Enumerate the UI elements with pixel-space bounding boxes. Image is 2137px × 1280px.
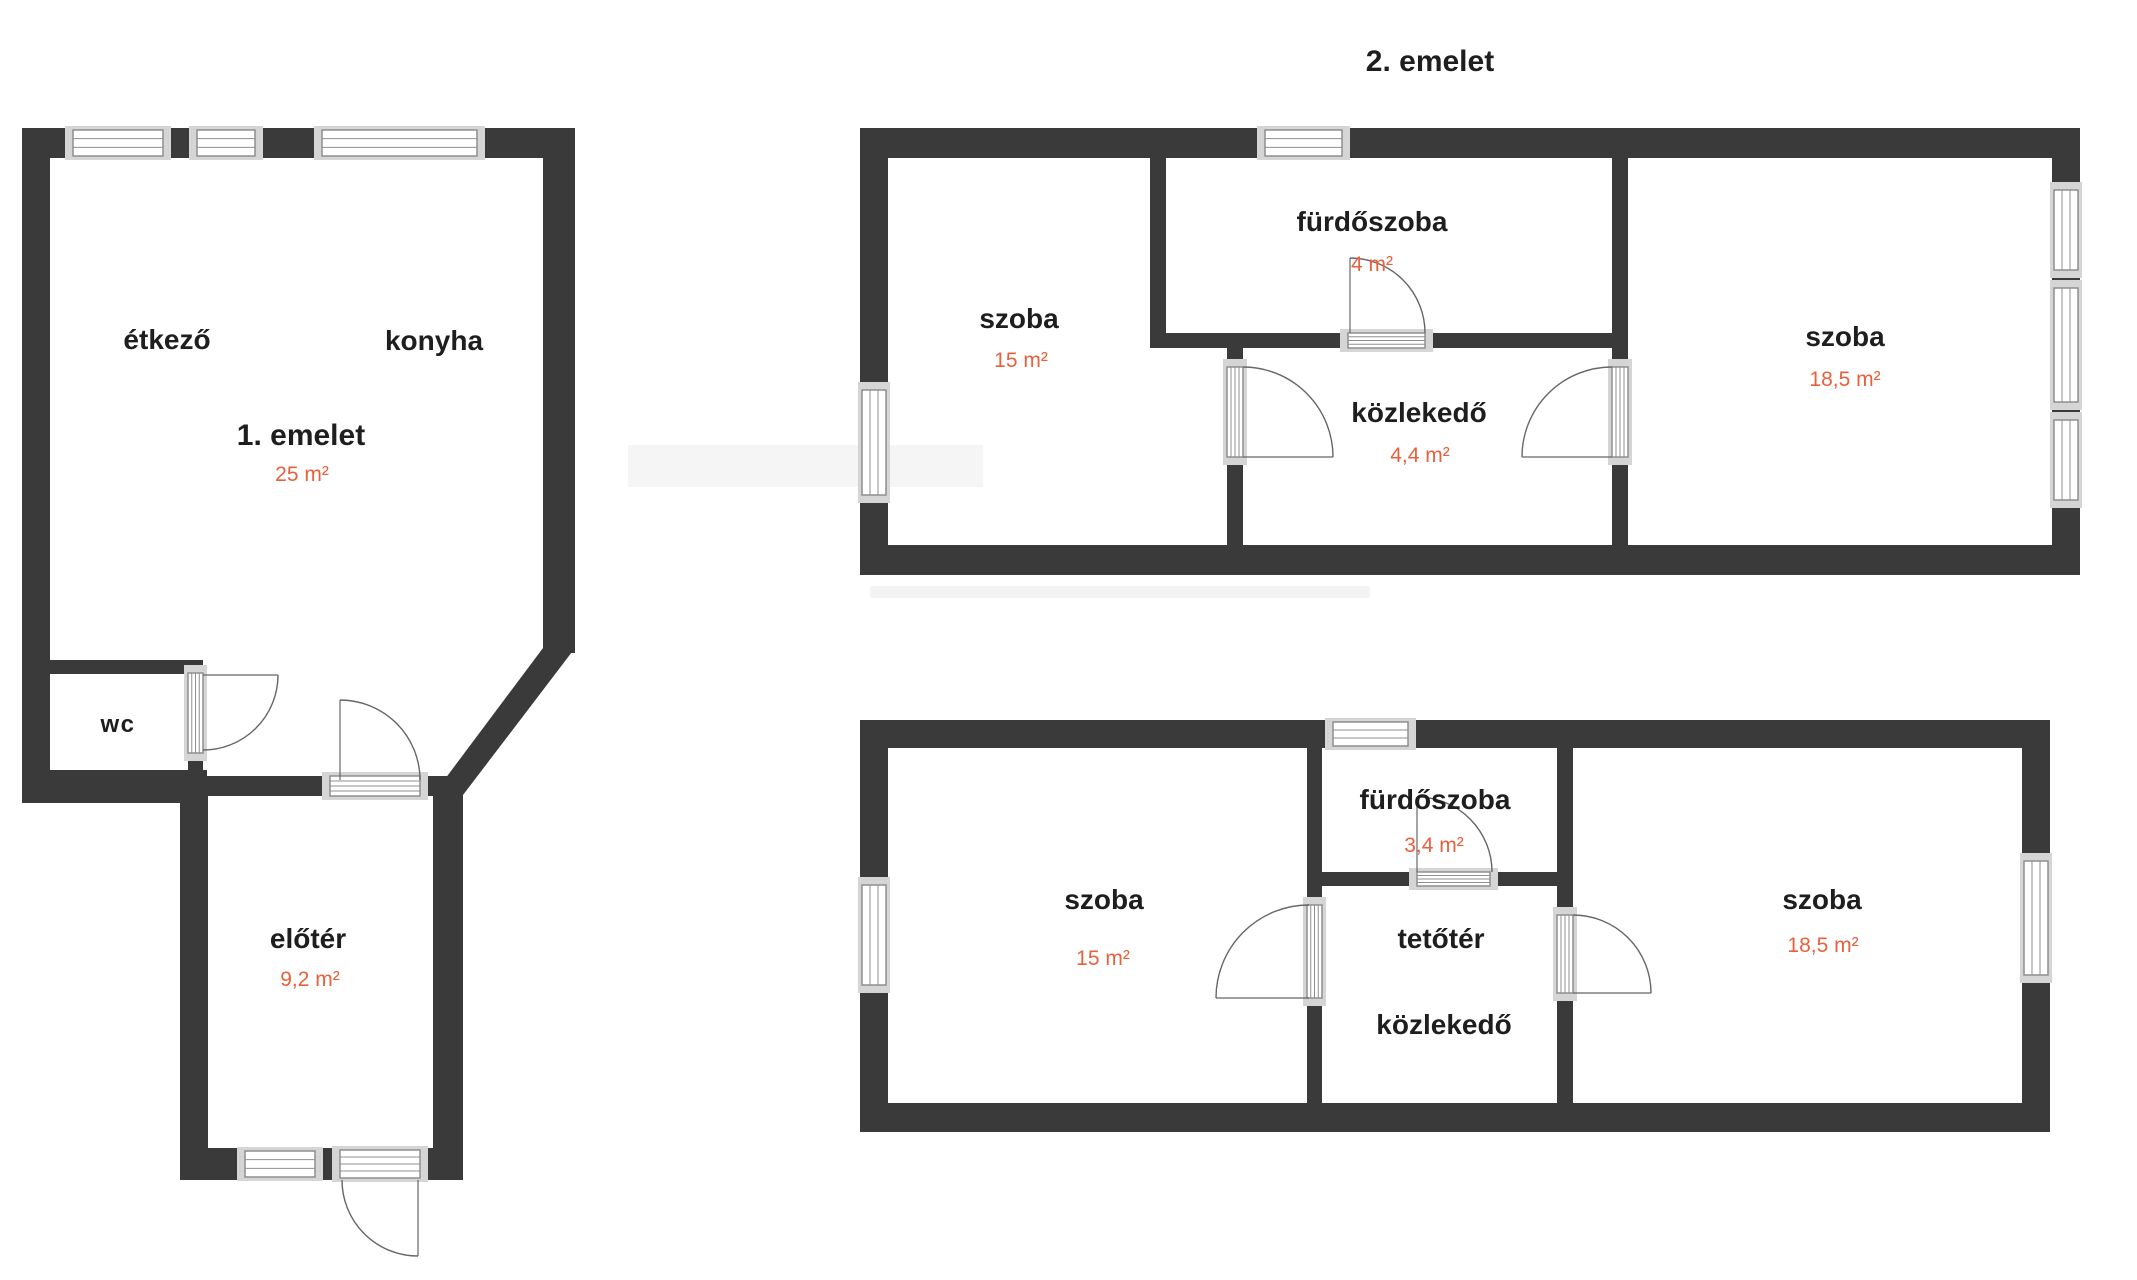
window bbox=[1265, 130, 1342, 156]
wall-segment bbox=[860, 720, 2050, 748]
wall-segment bbox=[1227, 457, 1243, 545]
plan-title: 2. emelet bbox=[1366, 45, 1494, 78]
wall-segment bbox=[22, 128, 50, 803]
room-area-eloter: 9,2 m² bbox=[280, 968, 340, 991]
room-label-etkezo: étkező bbox=[123, 324, 210, 355]
room-label-tetoter: tetőtér bbox=[1397, 923, 1484, 954]
room-label-kozlekedo-f3: közlekedő bbox=[1376, 1009, 1511, 1040]
room-label-eloter: előtér bbox=[270, 923, 346, 954]
wall-segment bbox=[207, 776, 330, 796]
room-area-furdoszoba-f2: 4 m² bbox=[1351, 253, 1393, 276]
room-label-konyha: konyha bbox=[385, 325, 483, 356]
wall-segment bbox=[1307, 748, 1322, 905]
window bbox=[2054, 190, 2078, 270]
wall-segment bbox=[22, 660, 203, 674]
wall-segment bbox=[860, 1103, 2050, 1132]
floorplan-canvas: 2. emeletétkezőkonyha1. emelet25 m²wcelő… bbox=[0, 0, 2137, 1280]
wall-segment bbox=[22, 770, 207, 803]
room-label-furdoszoba-f3: fürdőszoba bbox=[1360, 784, 1511, 815]
room-area-kozlekedo-f2: 4,4 m² bbox=[1390, 444, 1450, 467]
wall-segment bbox=[860, 545, 2080, 575]
wall-segment bbox=[1150, 333, 1350, 348]
room-area-szoba-f2-left: 15 m² bbox=[994, 349, 1048, 372]
door-swing-arc bbox=[1216, 905, 1309, 998]
door-swing-arc bbox=[203, 675, 278, 750]
wall-segment bbox=[1307, 998, 1322, 1103]
window bbox=[73, 130, 163, 156]
room-label-szoba-f3-right: szoba bbox=[1782, 884, 1862, 915]
diagonal-wall bbox=[433, 648, 575, 795]
wall-segment bbox=[180, 796, 208, 1180]
wall-segment bbox=[1612, 158, 1628, 367]
room-label-wc: wc bbox=[99, 711, 135, 738]
wall-segment bbox=[1322, 872, 1417, 886]
wall-segment bbox=[433, 788, 463, 1180]
room-label-szoba-f2-right: szoba bbox=[1805, 321, 1885, 352]
floor1-area: 25 m² bbox=[275, 463, 329, 486]
window bbox=[197, 130, 255, 156]
wall-segment bbox=[1557, 748, 1573, 915]
window bbox=[245, 1151, 315, 1177]
window bbox=[862, 390, 886, 495]
window bbox=[2054, 420, 2078, 500]
room-area-furdoszoba-f3: 3,4 m² bbox=[1404, 834, 1464, 857]
room-label-kozlekedo-f2: közlekedő bbox=[1351, 397, 1486, 428]
door-swing-arc bbox=[1573, 915, 1651, 993]
room-area-szoba-f3-right: 18,5 m² bbox=[1787, 934, 1858, 957]
wall-segment bbox=[1557, 993, 1573, 1103]
door-swing-arc bbox=[342, 1180, 418, 1256]
window bbox=[2024, 861, 2048, 975]
faded-watermark-band bbox=[870, 586, 1370, 598]
wall-segment bbox=[860, 128, 2080, 158]
wall-segment bbox=[543, 128, 575, 653]
room-area-szoba-f2-right: 18,5 m² bbox=[1809, 368, 1880, 391]
room-label-szoba-f3-left: szoba bbox=[1064, 884, 1144, 915]
floor-1-plan bbox=[22, 126, 575, 1256]
door-swing-arc bbox=[340, 700, 420, 780]
floor1-title: 1. emelet bbox=[237, 419, 365, 452]
door-swing-arc bbox=[1243, 367, 1333, 457]
window bbox=[862, 885, 886, 985]
wall-segment bbox=[1150, 158, 1166, 348]
window bbox=[322, 130, 477, 156]
wall-segment bbox=[1425, 333, 1613, 348]
wall-segment bbox=[860, 128, 888, 575]
window bbox=[1333, 722, 1408, 746]
wall-segment bbox=[1612, 457, 1628, 545]
wall-segment bbox=[1490, 872, 1557, 886]
door-swing-arc bbox=[1522, 367, 1612, 457]
room-label-szoba-f2-left: szoba bbox=[979, 303, 1059, 334]
room-area-szoba-f3-left: 15 m² bbox=[1076, 947, 1130, 970]
floorplan-page: 2. emeletétkezőkonyha1. emelet25 m²wcelő… bbox=[0, 0, 2137, 1280]
window bbox=[2054, 288, 2078, 402]
faded-watermark-band bbox=[628, 445, 983, 487]
room-label-furdoszoba-f2: fürdőszoba bbox=[1297, 206, 1448, 237]
